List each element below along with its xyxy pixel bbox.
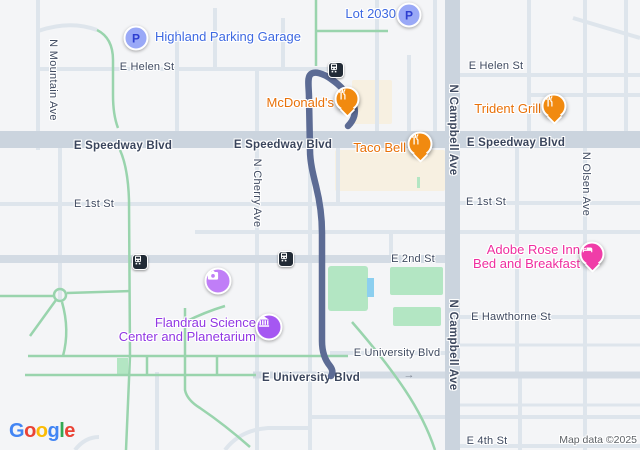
transit-stop-icon[interactable]	[132, 254, 148, 270]
fork-knife-icon	[337, 89, 349, 101]
restaurant-pin-trident-grill[interactable]	[542, 94, 567, 119]
street-label-speedway-center: E Speedway Blvd	[234, 139, 332, 151]
museum-icon-flandrau[interactable]	[256, 314, 283, 341]
poi-label-adobe-rose-inn[interactable]: Adobe Rose Inn Bed and Breakfast	[473, 243, 580, 271]
bed-icon	[582, 244, 594, 256]
museum-building-icon	[258, 316, 271, 329]
street-label-second: E 2nd St	[391, 253, 435, 265]
street-label-olsen-ave: N Olsen Ave	[580, 152, 592, 216]
route-layer	[0, 0, 640, 450]
street-label-mountain-ave: N Mountain Ave	[47, 39, 59, 121]
restaurant-pin-taco-bell[interactable]	[408, 132, 433, 157]
camera-icon	[207, 270, 220, 283]
street-label-campbell-south: N Campbell Ave	[447, 300, 459, 391]
poi-label-mcdonalds[interactable]: McDonald's	[266, 96, 334, 110]
lodging-pin-adobe-rose[interactable]	[580, 242, 605, 267]
poi-label-taco-bell[interactable]: Taco Bell	[353, 141, 406, 155]
map-canvas[interactable]: E University Blvd E Helen St E Helen St …	[0, 0, 640, 450]
poi-label-highland-parking[interactable]: Highland Parking Garage	[155, 30, 301, 44]
street-label-first-west: E 1st St	[74, 198, 114, 210]
street-label-first-east: E 1st St	[466, 196, 506, 208]
fork-knife-icon	[544, 96, 556, 108]
street-label-university-north: E University Blvd	[354, 347, 441, 359]
parking-icon-lot-2030[interactable]: P	[397, 3, 422, 28]
street-label-speedway-west: E Speedway Blvd	[74, 140, 172, 152]
restaurant-pin-mcdonalds[interactable]	[335, 87, 360, 112]
street-label-cherry-ave: N Cherry Ave	[251, 159, 263, 228]
parking-icon-highland[interactable]: P	[124, 26, 149, 51]
photo-spot-camera-icon[interactable]	[205, 268, 232, 295]
tram-icon	[279, 252, 289, 262]
tram-icon	[133, 255, 143, 265]
map-data-attribution: Map data ©2025	[559, 434, 637, 446]
tram-icon	[329, 63, 339, 73]
google-logo[interactable]: Google	[9, 420, 75, 443]
poi-label-trident-grill[interactable]: Trident Grill	[474, 102, 541, 116]
street-label-campbell-north: N Campbell Ave	[447, 85, 459, 176]
transit-stop-icon[interactable]	[328, 62, 344, 78]
street-label-helen-east: E Helen St	[469, 60, 524, 72]
street-label-fourth: E 4th St	[467, 435, 508, 447]
transit-stop-icon[interactable]	[278, 251, 294, 267]
street-label-speedway-east: E Speedway Blvd	[467, 137, 565, 149]
fork-knife-icon	[410, 134, 422, 146]
street-label-helen-west: E Helen St	[120, 61, 175, 73]
route-polyline[interactable]	[308, 73, 354, 376]
poi-label-flandrau[interactable]: Flandrau Science Center and Planetarium	[119, 316, 256, 344]
poi-label-lot-2030[interactable]: Lot 2030	[345, 7, 396, 21]
street-label-hawthorne: E Hawthorne St	[471, 311, 551, 323]
